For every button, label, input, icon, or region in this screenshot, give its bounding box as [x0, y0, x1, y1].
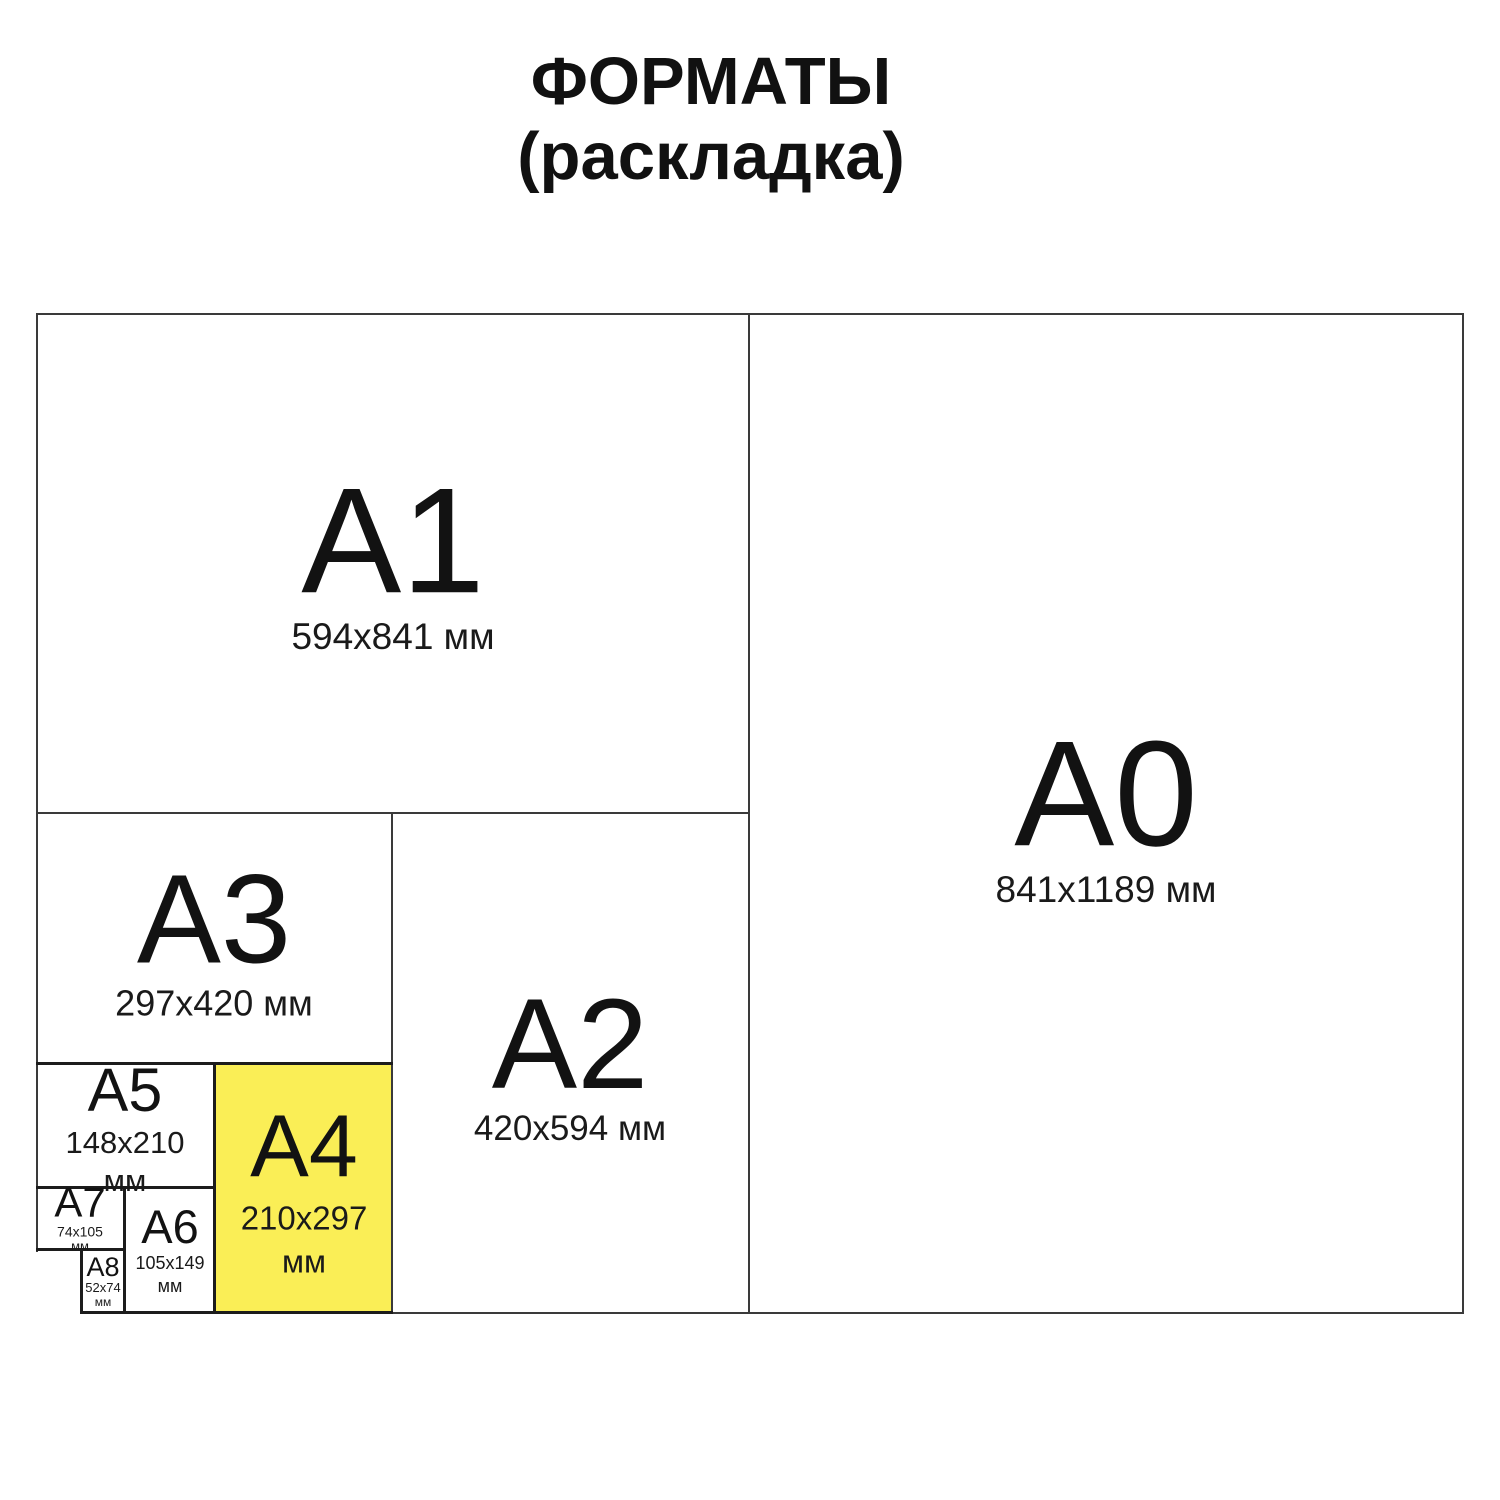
paper-a4-name: A4	[241, 1104, 368, 1190]
page-title: ФОРМАТЫ (раскладка)	[517, 44, 905, 194]
paper-a3-dimensions: 297x420 мм	[115, 983, 313, 1024]
page-title-line1: ФОРМАТЫ	[517, 44, 905, 119]
paper-a1: A1 594x841 мм	[291, 467, 494, 659]
paper-a6: A6 105x149 мм	[135, 1204, 204, 1296]
paper-a6-name: A6	[135, 1204, 204, 1250]
paper-a3: A3 297x420 мм	[115, 858, 313, 1025]
page-title-line2: (раскладка)	[517, 119, 905, 194]
paper-a0: A0 841x1189 мм	[996, 720, 1217, 912]
paper-a5-name: A5	[66, 1061, 185, 1121]
paper-a5-dimensions: 148x210	[66, 1125, 185, 1161]
paper-a8-name: A8	[85, 1254, 120, 1280]
paper-a0-dimensions: 841x1189 мм	[996, 869, 1217, 912]
paper-a7: A7 74x105 мм	[54, 1181, 105, 1254]
paper-a1-name: A1	[291, 467, 494, 614]
paper-a4: A4 210x297 мм	[241, 1104, 368, 1281]
border-line-left	[36, 313, 38, 1252]
paper-a7-dimensions: 74x105	[54, 1224, 105, 1240]
paper-a2-name: A2	[474, 982, 666, 1107]
paper-a8: A8 52x74 мм	[85, 1254, 120, 1310]
paper-a6-unit: мм	[135, 1276, 204, 1297]
paper-a3-name: A3	[115, 858, 313, 981]
border-line-top	[36, 313, 1464, 315]
paper-a2-dimensions: 420x594 мм	[474, 1110, 666, 1150]
paper-a4-unit: мм	[241, 1244, 368, 1281]
border-line-right	[1462, 313, 1464, 1314]
paper-a4-dimensions: 210x297	[241, 1200, 368, 1238]
paper-a1-dimensions: 594x841 мм	[291, 616, 494, 659]
border-line-bottom-small	[80, 1311, 393, 1314]
divider-a1-bottom	[36, 812, 750, 814]
paper-a0-name: A0	[996, 720, 1217, 867]
paper-a8-unit: мм	[85, 1296, 120, 1310]
border-a8-left	[80, 1248, 83, 1314]
paper-a2: A2 420x594 мм	[474, 982, 666, 1150]
paper-a8-dimensions: 52x74	[85, 1281, 120, 1296]
paper-a7-name: A7	[54, 1181, 105, 1222]
paper-formats-diagram: A1 594x841 мм A0 841x1189 мм A3 297x420 …	[36, 313, 1464, 1314]
paper-a6-dimensions: 105x149	[135, 1253, 204, 1274]
